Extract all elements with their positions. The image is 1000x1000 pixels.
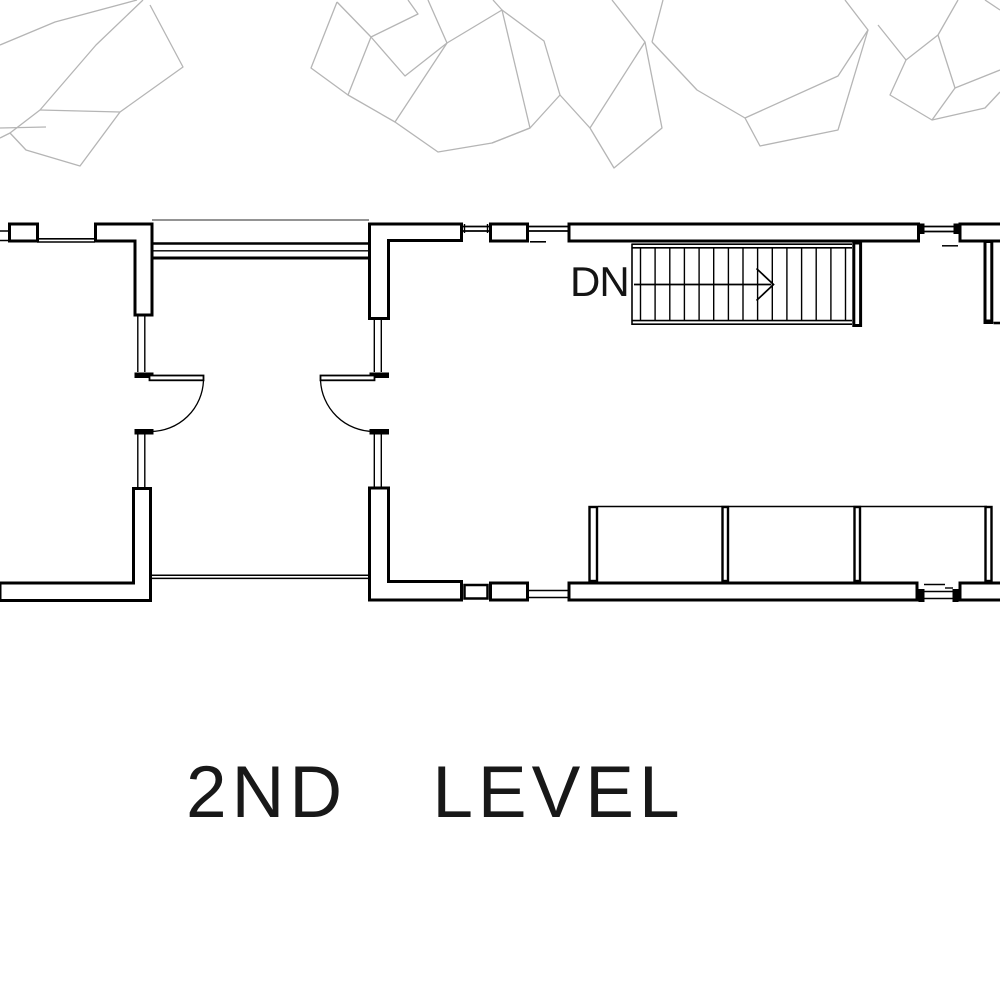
wall-top-deck-right-corner	[370, 224, 462, 319]
wall-bottom-long	[569, 583, 917, 600]
closet-divider	[590, 507, 598, 581]
deck-wall-sidelights	[138, 316, 381, 488]
wall-stair-right	[854, 243, 861, 326]
door-leaf	[150, 376, 204, 381]
wall-bottom-window-box	[465, 585, 488, 599]
wall-bottom-right	[960, 583, 1000, 600]
window	[37, 239, 95, 242]
wall-bottom-deck-right-corner	[370, 488, 462, 600]
door-swing-arc	[151, 380, 204, 432]
wall-bottom-left-corner	[0, 489, 151, 601]
left-door	[150, 376, 204, 432]
wall-top-pier	[10, 224, 38, 241]
closet-divider	[986, 507, 992, 581]
wall-top-long	[569, 224, 919, 241]
floor-plan-canvas: DN 2ND LEVEL	[0, 0, 1000, 1000]
window	[462, 224, 490, 233]
wall-top-pier	[491, 224, 528, 241]
plan-title: 2ND LEVEL	[186, 756, 685, 829]
wall-bottom-pier	[491, 583, 528, 600]
door-leaf	[321, 376, 375, 381]
door-jambs	[135, 320, 994, 435]
stair-down-label: DN	[570, 261, 629, 303]
wall-top-right	[960, 224, 1000, 241]
window	[919, 585, 959, 603]
closet-divider	[723, 507, 729, 581]
wall-end-cap	[984, 320, 994, 325]
closet-divider	[855, 507, 861, 581]
window	[0, 231, 9, 241]
right-door	[321, 376, 375, 432]
closet-band	[590, 507, 992, 582]
wall-top-left-corner	[96, 224, 153, 315]
window	[528, 227, 568, 242]
floor-plan-linework	[0, 0, 1000, 1000]
door-swing-arc	[321, 380, 374, 432]
window	[920, 224, 959, 246]
window	[529, 591, 568, 598]
walls	[0, 224, 1000, 601]
staircase	[632, 244, 852, 326]
wall-room-right	[985, 242, 992, 323]
deck-rail-lines	[152, 220, 369, 578]
